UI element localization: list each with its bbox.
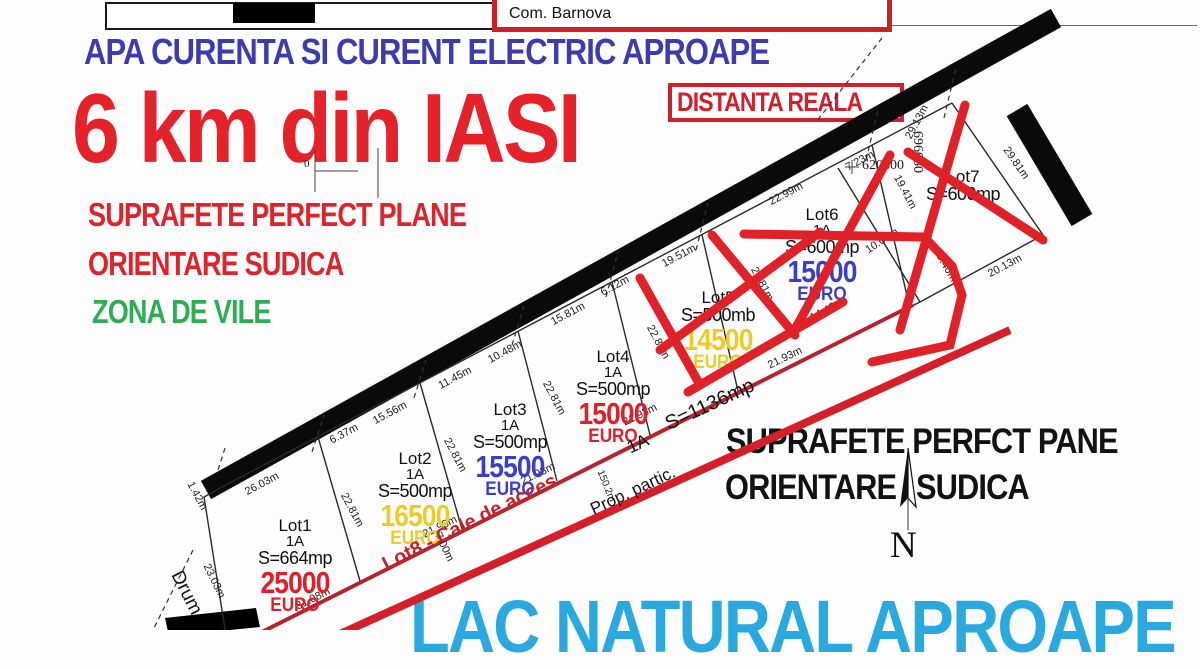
north-arrow: [900, 448, 916, 530]
lot3-price: 15500: [475, 452, 544, 481]
bottom-redaction-bar: [165, 608, 260, 630]
lot5-label: Lot5 S=500mb 14500 EURO: [677, 289, 758, 372]
lot1-label: Lot1 1A S=664mp 25000 EURO: [254, 517, 335, 615]
lot6-label: Lot6 1A S=600mp 15000 EURO: [781, 206, 862, 304]
lot6-price: 15000: [787, 257, 856, 286]
scale-zero-label: 0: [304, 158, 310, 170]
lot5-currency: EURO: [681, 354, 754, 372]
lot6-currency: EURO: [785, 286, 858, 304]
lot1-price: 25000: [260, 568, 329, 597]
flyer-canvas: { "titlebar": { "location": "Com. Barnov…: [0, 0, 1200, 630]
lot7-label: Lot7 S=600mp: [926, 168, 1000, 204]
lot4-price: 15000: [578, 399, 647, 428]
north-label: N: [890, 524, 917, 567]
secondary-road-bar: [1017, 110, 1082, 220]
lot5-price: 14500: [683, 325, 752, 354]
lot1-currency: EURO: [258, 597, 331, 615]
cadastral-plan-linework: [0, 0, 1200, 630]
